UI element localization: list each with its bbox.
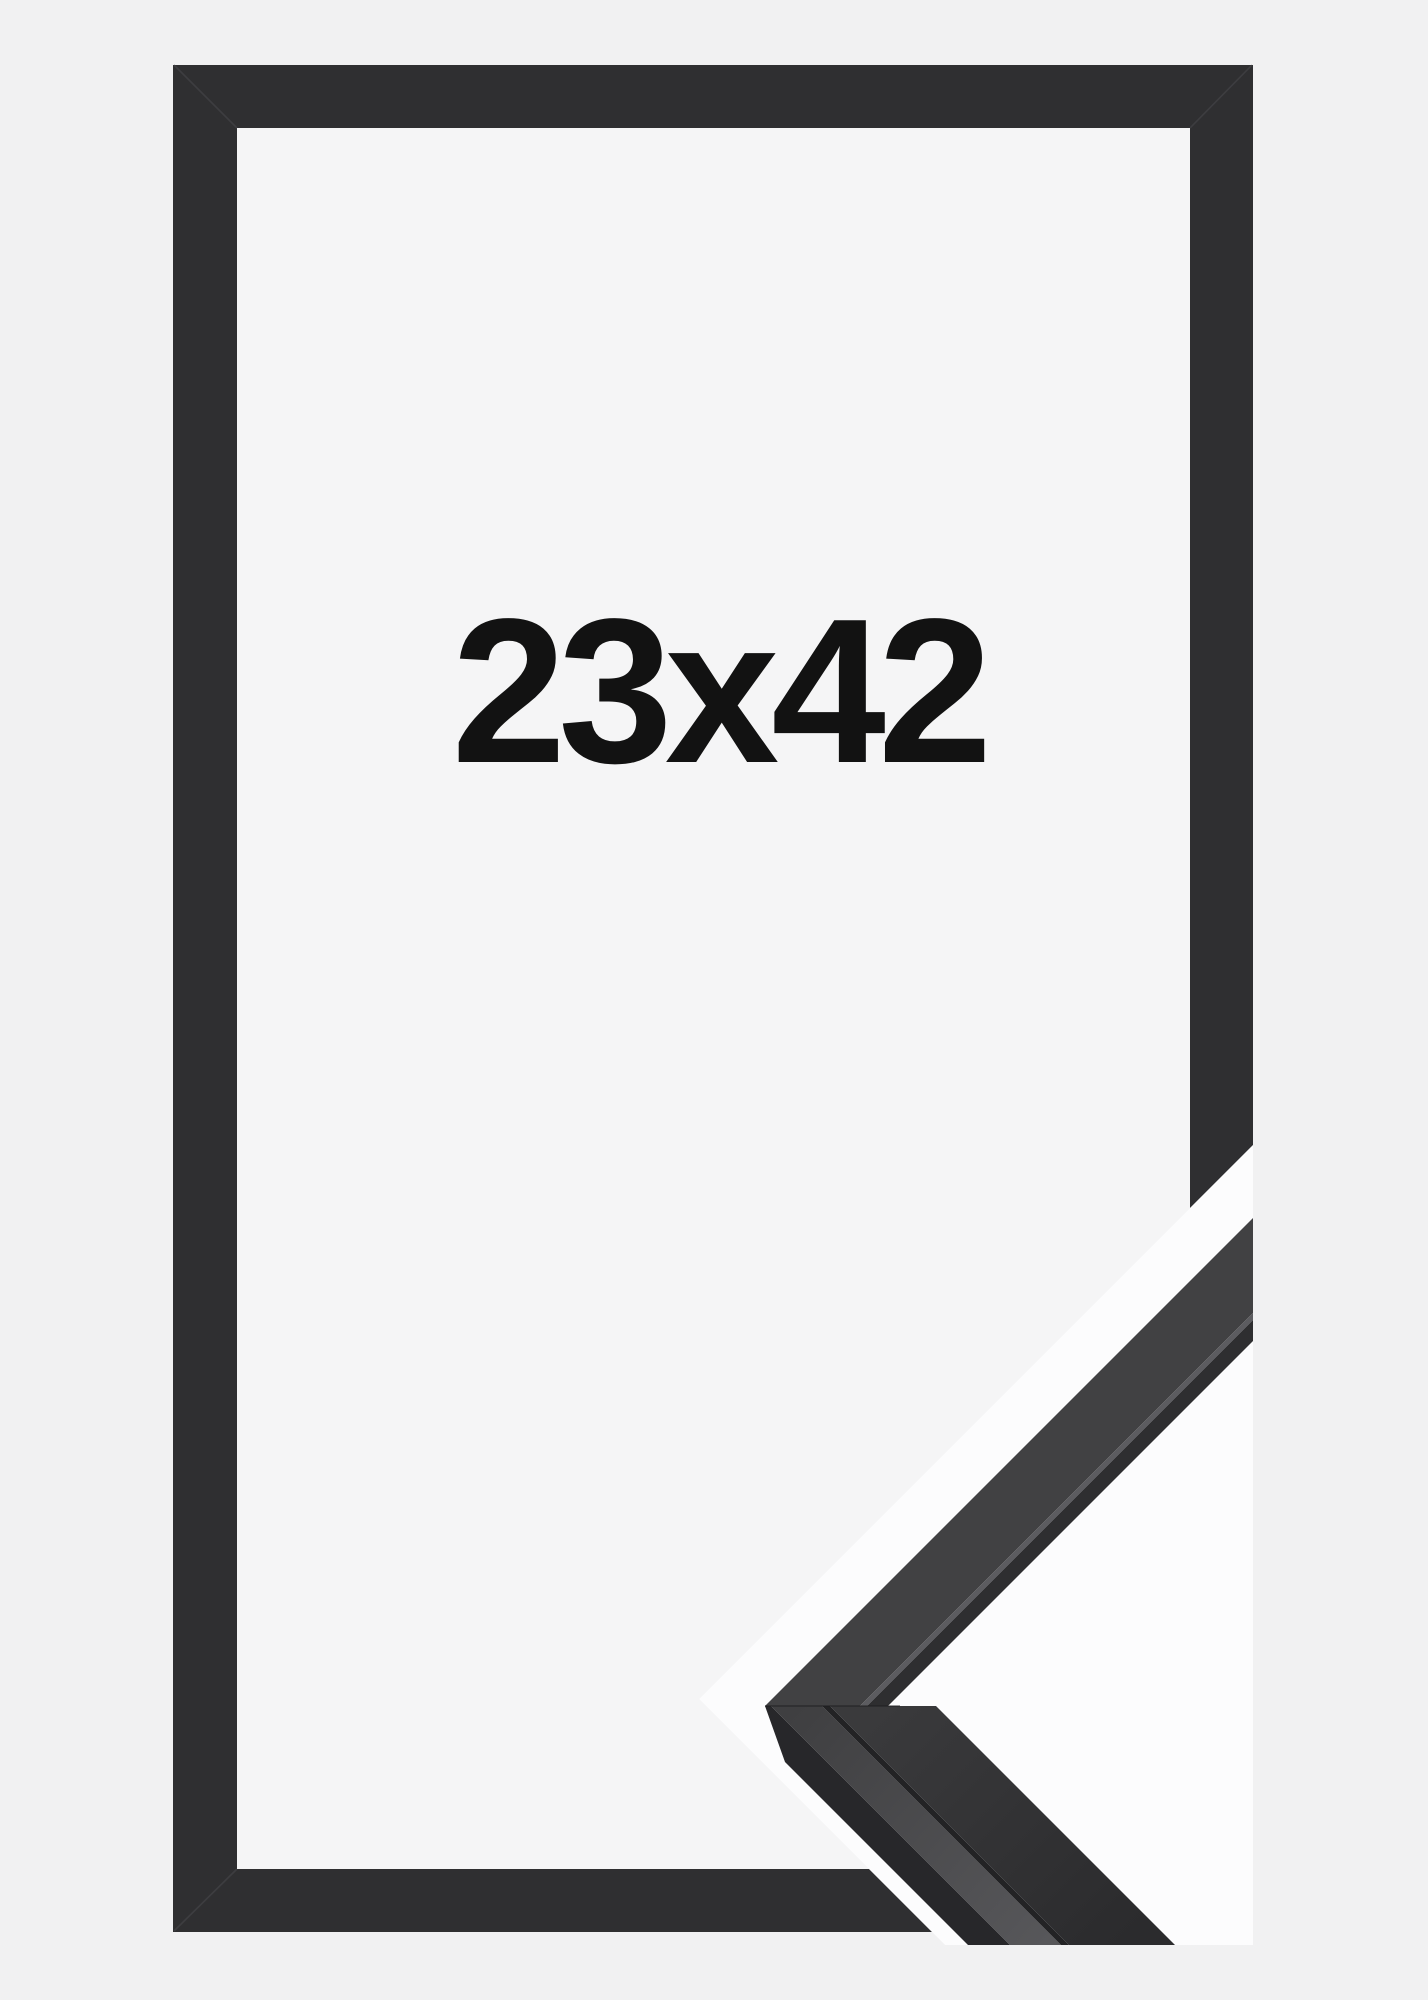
size-label: 23x42 — [452, 588, 985, 794]
product-photo: 23x42 — [0, 0, 1428, 2000]
frame-graphic — [0, 0, 1428, 2000]
